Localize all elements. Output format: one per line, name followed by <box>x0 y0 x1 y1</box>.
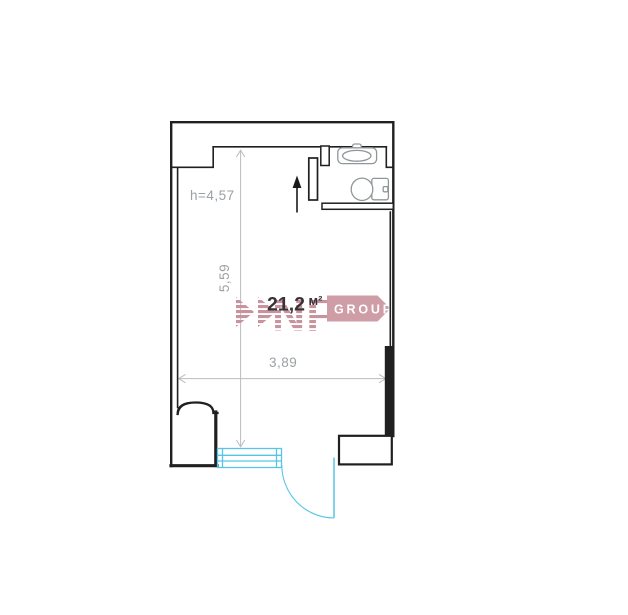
door-swing <box>282 458 334 519</box>
bathroom-door-jamb <box>321 146 329 166</box>
ceiling-height-label: h=4,57 <box>190 188 235 203</box>
area-unit-label: м² <box>309 293 324 308</box>
horizontal-dimension-label: 3,89 <box>269 355 297 370</box>
window <box>218 449 282 468</box>
vertical-dimension-label: 5,59 <box>217 264 232 292</box>
bathroom-right-wall <box>386 147 393 168</box>
alcove-arc-wall <box>178 403 218 415</box>
floor-plan-canvas: NF GROUP <box>0 0 628 615</box>
watermark-chevron-icon <box>236 297 254 327</box>
bathroom-bottom-wall <box>322 203 393 209</box>
dimension-horizontal <box>179 374 386 382</box>
partition-wall <box>309 158 318 200</box>
door-arc <box>282 465 334 518</box>
right-wall-solid-segment <box>385 346 394 436</box>
floor-plan-screenshot: NF GROUP <box>0 0 628 615</box>
watermark-suffix: GROUP <box>334 303 394 317</box>
curved-alcove <box>178 403 218 466</box>
toilet-icon <box>351 178 388 200</box>
up-arrow-icon <box>293 176 302 213</box>
area-value-label: 21,2 <box>267 294 305 316</box>
shaft-room <box>339 436 392 465</box>
